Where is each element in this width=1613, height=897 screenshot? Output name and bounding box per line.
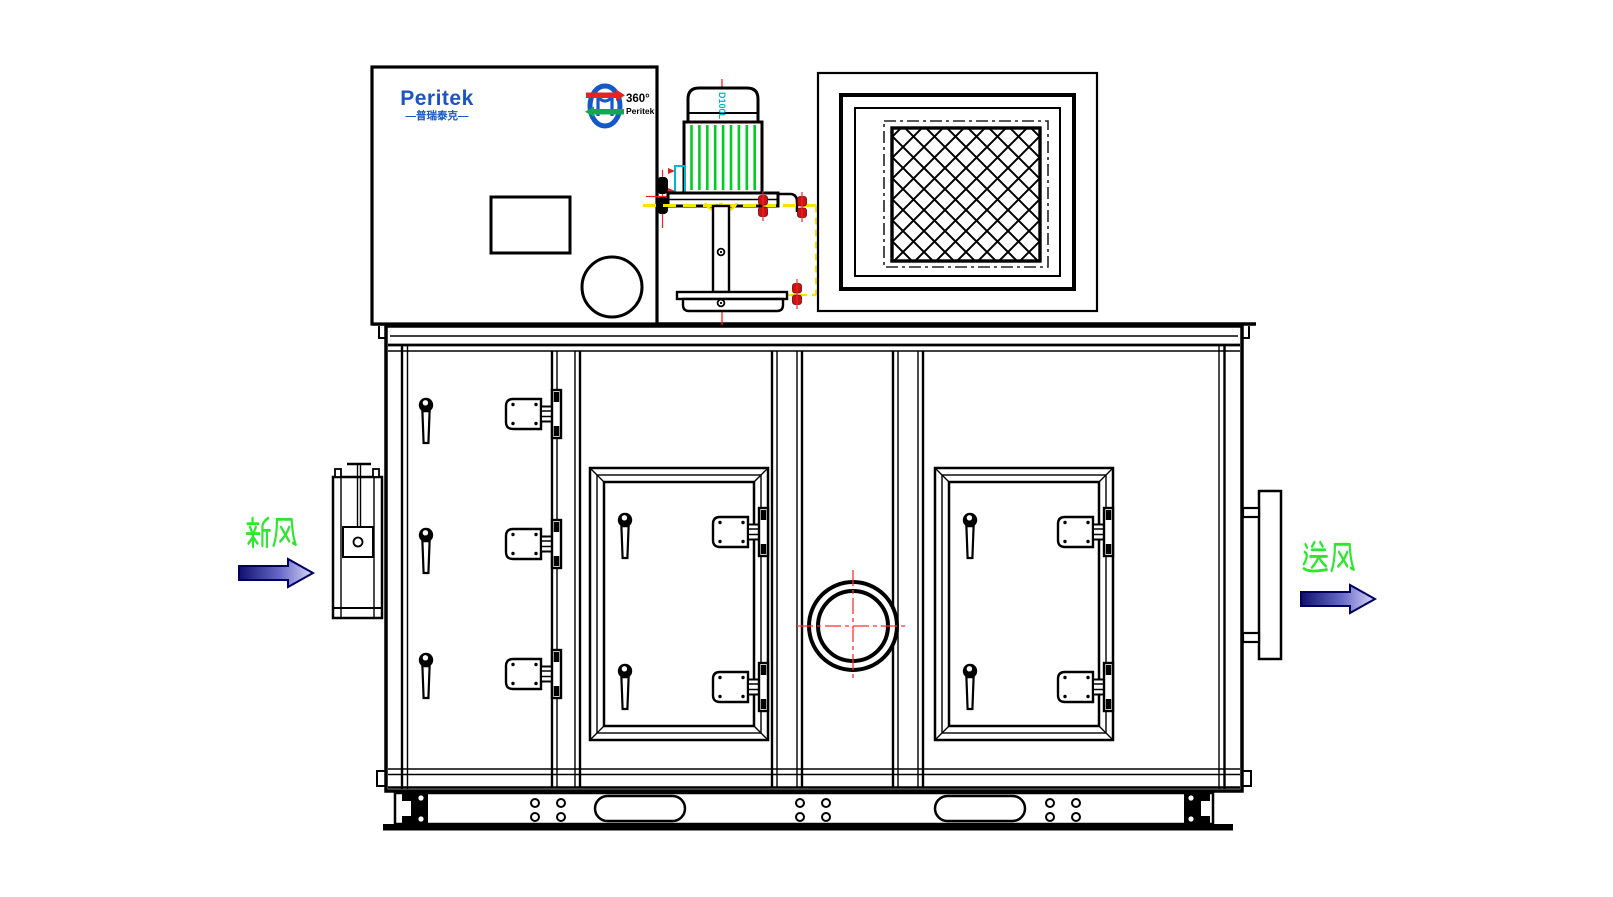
technical-drawing-canvas: Peritek —普瑞泰克— 360° Peritek bbox=[0, 0, 1613, 897]
logo-subtext: —普瑞泰克— bbox=[406, 109, 469, 122]
badge-brand-text: Peritek bbox=[626, 106, 655, 116]
fresh-air-damper bbox=[333, 464, 382, 618]
forklift-slot-right bbox=[935, 796, 1025, 821]
base-foot-right bbox=[1184, 792, 1210, 825]
right-access-door bbox=[935, 468, 1113, 740]
fresh-air-char-2 bbox=[274, 519, 296, 545]
fresh-air-arrow bbox=[239, 559, 313, 587]
forklift-slot-left bbox=[595, 796, 685, 821]
motor-cap: D100L bbox=[688, 88, 758, 122]
logo-text: Peritek bbox=[400, 87, 474, 110]
filter-mesh bbox=[892, 128, 1040, 261]
base-frame bbox=[383, 792, 1233, 831]
motor-assembly: D100L bbox=[643, 79, 816, 325]
motor-body bbox=[684, 122, 762, 193]
supply-air-flange bbox=[1243, 491, 1281, 659]
motor-model-text: D100L bbox=[717, 92, 727, 120]
peritek-logo: Peritek —普瑞泰克— bbox=[400, 87, 474, 122]
middle-access-door bbox=[590, 468, 768, 740]
filter-grille bbox=[818, 73, 1097, 311]
base-bottom-bar bbox=[383, 824, 1233, 831]
supply-air-label bbox=[1304, 542, 1354, 571]
control-panel-box: Peritek —普瑞泰克— 360° Peritek bbox=[372, 67, 682, 324]
motor-support-column bbox=[677, 206, 787, 311]
base-foot-left bbox=[402, 792, 428, 825]
nameplate-rect bbox=[491, 197, 570, 253]
panel-port-circle bbox=[582, 257, 642, 317]
fresh-air-label bbox=[247, 518, 296, 547]
supply-air-char-1 bbox=[1304, 542, 1327, 571]
dehumidifier-elevation-drawing: Peritek —普瑞泰克— 360° Peritek bbox=[0, 0, 1613, 897]
mounting-plate-lower bbox=[683, 299, 783, 311]
supply-air-arrow bbox=[1301, 585, 1375, 613]
fresh-air-char-1 bbox=[247, 518, 270, 547]
supply-air-char-2 bbox=[1332, 544, 1354, 570]
cabinet bbox=[372, 324, 1256, 791]
badge-degree-text: 360° bbox=[626, 93, 650, 105]
